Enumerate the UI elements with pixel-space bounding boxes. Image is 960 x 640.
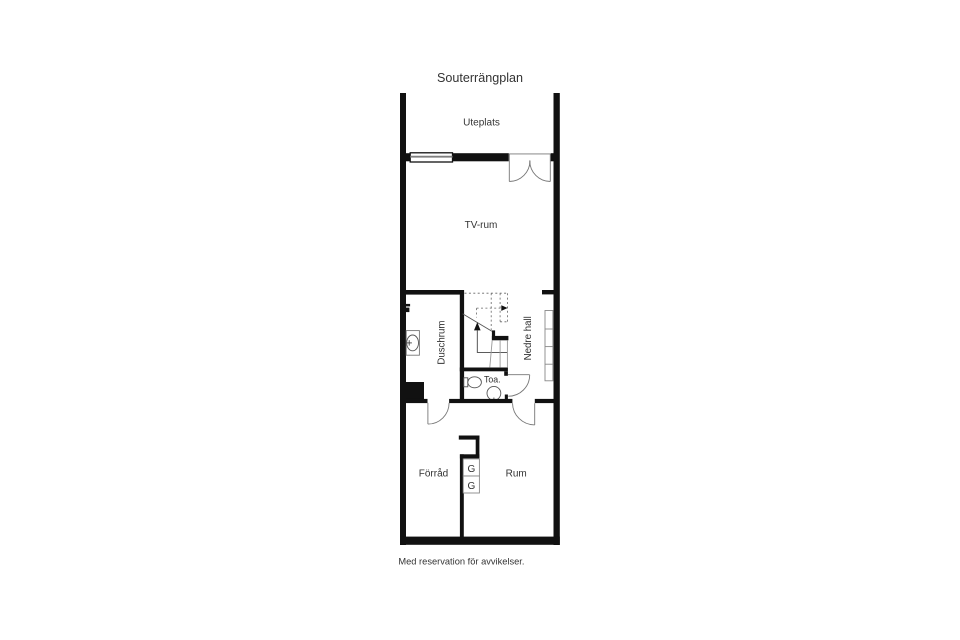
svg-text:Nedre hall: Nedre hall <box>523 316 534 360</box>
svg-text:Uteplats: Uteplats <box>463 118 500 129</box>
svg-text:Med reservation för avvikelser: Med reservation för avvikelser. <box>398 557 524 567</box>
svg-text:G: G <box>468 481 476 492</box>
svg-text:Toa.: Toa. <box>484 374 501 384</box>
svg-text:Förråd: Förråd <box>419 467 448 479</box>
svg-text:G: G <box>468 464 476 475</box>
svg-text:Duschrum: Duschrum <box>436 321 447 365</box>
svg-text:TV-rum: TV-rum <box>465 220 498 231</box>
svg-text:Rum: Rum <box>506 468 527 479</box>
svg-text:Souterrängplan: Souterrängplan <box>437 71 523 85</box>
